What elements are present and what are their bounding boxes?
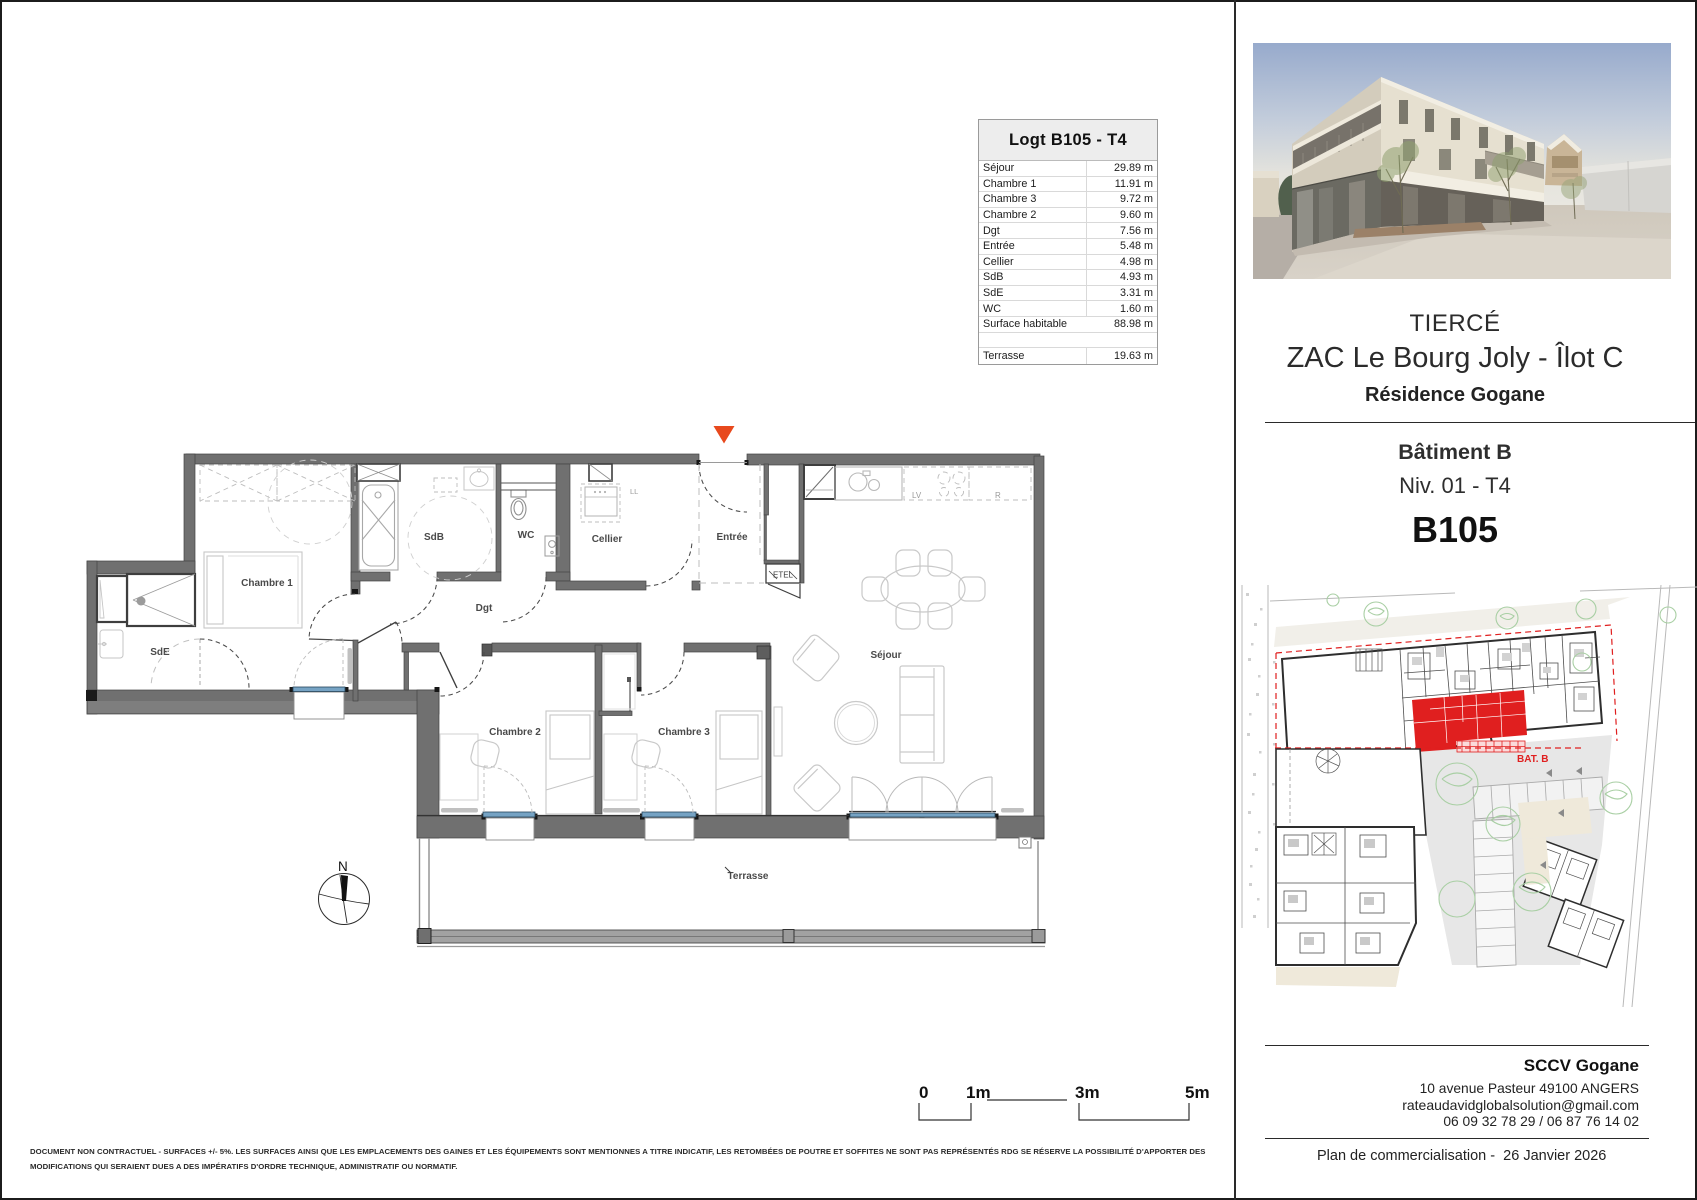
svg-text:Chambre 2: Chambre 2 <box>489 727 541 738</box>
svg-text:3m: 3m <box>1075 1083 1100 1102</box>
svg-text:Entrée: Entrée <box>716 532 748 543</box>
svg-text:BAT. B: BAT. B <box>1517 754 1548 765</box>
svg-text:N: N <box>338 859 348 874</box>
svg-text:Terrasse: Terrasse <box>728 871 769 882</box>
svg-text:0: 0 <box>919 1083 928 1102</box>
svg-text:LV: LV <box>912 491 922 500</box>
svg-text:SdB: SdB <box>424 532 444 543</box>
svg-text:Chambre 1: Chambre 1 <box>241 578 293 589</box>
svg-text:R: R <box>995 491 1001 500</box>
svg-text:Chambre 3: Chambre 3 <box>658 727 710 738</box>
svg-text:Cellier: Cellier <box>592 534 623 545</box>
svg-text:SdE: SdE <box>150 647 170 658</box>
svg-text:1m: 1m <box>966 1083 991 1102</box>
svg-text:LL: LL <box>630 487 638 496</box>
svg-text:5m: 5m <box>1185 1083 1210 1102</box>
svg-text:WC: WC <box>518 530 535 541</box>
svg-text:Séjour: Séjour <box>870 650 901 661</box>
svg-text:Dgt: Dgt <box>476 603 493 614</box>
